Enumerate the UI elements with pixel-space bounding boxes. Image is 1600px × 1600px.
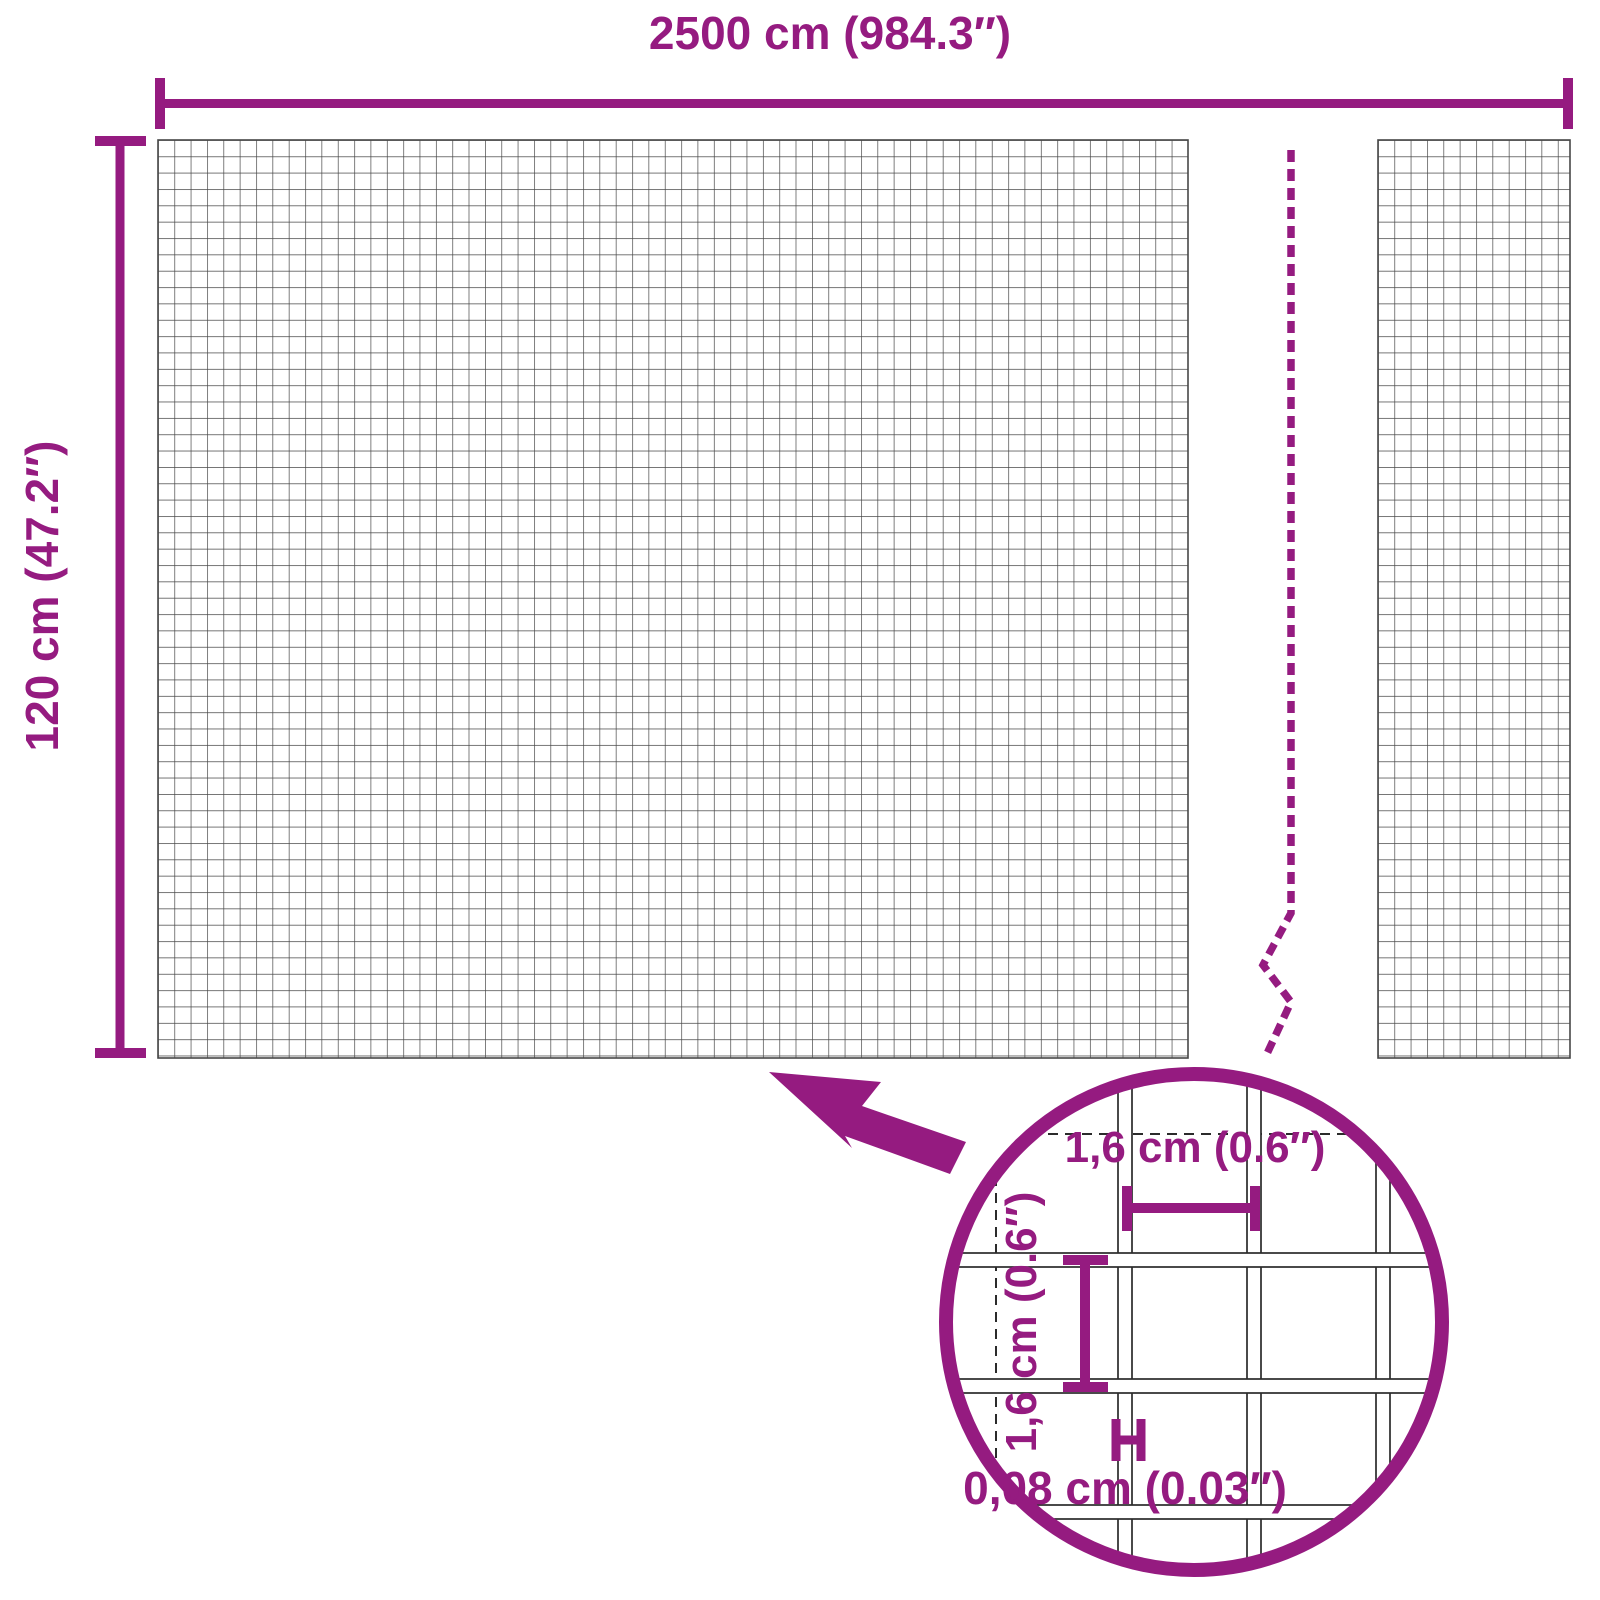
- break-line: [1263, 150, 1291, 1058]
- mesh-panel-main: [158, 140, 1188, 1058]
- height-dimension-line: [95, 141, 146, 1053]
- width-label: 2500 cm (984.3″): [649, 10, 1011, 56]
- mesh-panel-right: [1378, 140, 1570, 1058]
- wire-thickness-label: 0,08 cm (0.03″): [963, 1465, 1287, 1511]
- mesh-width-label: 1,6 cm (0.6″): [1065, 1126, 1326, 1170]
- diagram-canvas: [0, 0, 1600, 1600]
- height-label: 120 cm (47.2″): [19, 441, 65, 752]
- zoom-arrow-icon: [769, 1072, 966, 1174]
- width-dimension-line: [160, 78, 1568, 129]
- mesh-height-label: 1,6 cm (0.6″): [1000, 1192, 1044, 1453]
- product-dimension-diagram: 2500 cm (984.3″) 120 cm (47.2″) 1,6 cm (…: [0, 0, 1600, 1600]
